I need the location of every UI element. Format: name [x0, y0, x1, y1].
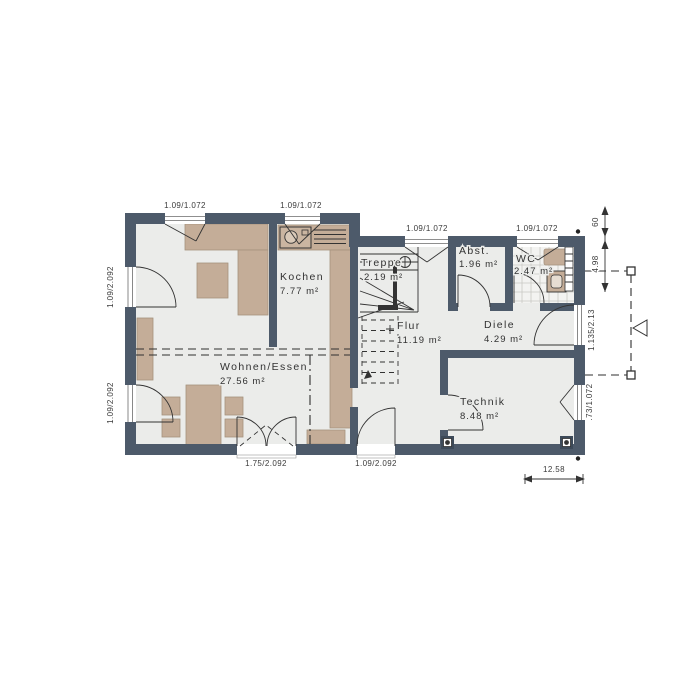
chair [225, 397, 243, 415]
drain-dot [576, 456, 580, 460]
label-window-top-1: 1.09/1.072 [164, 201, 206, 210]
label-entrance-door: 1.135/2.13 [587, 309, 596, 351]
label-dim-498: 4.98 [591, 255, 600, 272]
label-window-top-2: 1.09/1.072 [280, 201, 322, 210]
svg-text:1.96 m²: 1.96 m² [459, 259, 498, 270]
wall-wc [505, 247, 513, 311]
room-label-technik: Technik [460, 396, 505, 408]
wc-radiator [565, 247, 573, 291]
canopy-post [627, 371, 635, 379]
wall-abst [448, 247, 456, 311]
label-door-left-1: 1.09/2.092 [106, 266, 115, 308]
sofa-top [185, 224, 268, 250]
label-dim-1258: 12.58 [543, 465, 565, 474]
chair [162, 397, 180, 415]
room-label-flur: Flur [397, 320, 421, 332]
column [441, 436, 454, 449]
svg-text:2.19 m²: 2.19 m² [364, 272, 403, 283]
svg-text:27.56 m²: 27.56 m² [220, 376, 266, 387]
floor-plan-page: Wohnen/Essen 27.56 m² Kochen 7.77 m² Tre… [0, 0, 700, 700]
room-label-wohnen: Wohnen/Essen [220, 361, 308, 373]
svg-text:8.48 m²: 8.48 m² [460, 411, 499, 422]
room-label-diele: Diele [484, 319, 515, 331]
wc-sink [544, 249, 567, 265]
kitchen-counter-side [330, 250, 352, 428]
bench [307, 430, 345, 444]
label-door-bottom-1: 1.75/2.092 [245, 459, 287, 468]
dining-table [186, 385, 221, 448]
svg-text:4.29 m²: 4.29 m² [484, 334, 523, 345]
wall-kitchen [269, 224, 277, 347]
floor-plan-canvas: Wohnen/Essen 27.56 m² Kochen 7.77 m² Tre… [0, 0, 700, 700]
coffee-table [197, 263, 228, 298]
svg-text:2.47 m²: 2.47 m² [514, 266, 553, 277]
column [560, 436, 573, 449]
room-label-treppe: Treppe [361, 257, 402, 269]
wall-technik-left [440, 358, 448, 395]
label-dim-60: 60 [591, 217, 600, 227]
label-door-bottom-2: 1.09/2.092 [355, 459, 397, 468]
sofa-side [238, 250, 268, 315]
chair [225, 419, 243, 437]
room-label-kochen: Kochen [280, 271, 324, 283]
label-window-top-3: 1.09/1.072 [406, 224, 448, 233]
label-window-right: .73/1.072 [585, 383, 594, 420]
label-door-left-2: 1.09/2.092 [106, 382, 115, 424]
svg-text:11.19 m²: 11.19 m² [397, 335, 442, 346]
drain-dot [576, 229, 580, 233]
entrance-triangle-icon [633, 320, 647, 336]
wall-technik-top [440, 350, 574, 358]
svg-text:7.77 m²: 7.77 m² [280, 286, 319, 297]
label-window-top-4: 1.09/1.072 [516, 224, 558, 233]
room-label-wc: WC [516, 253, 536, 265]
canopy-post [627, 267, 635, 275]
dimension-chain-right [602, 206, 609, 292]
wall-stair [350, 247, 358, 388]
dimension-bottom [523, 474, 585, 484]
room-label-abst: Abst. [459, 245, 490, 257]
